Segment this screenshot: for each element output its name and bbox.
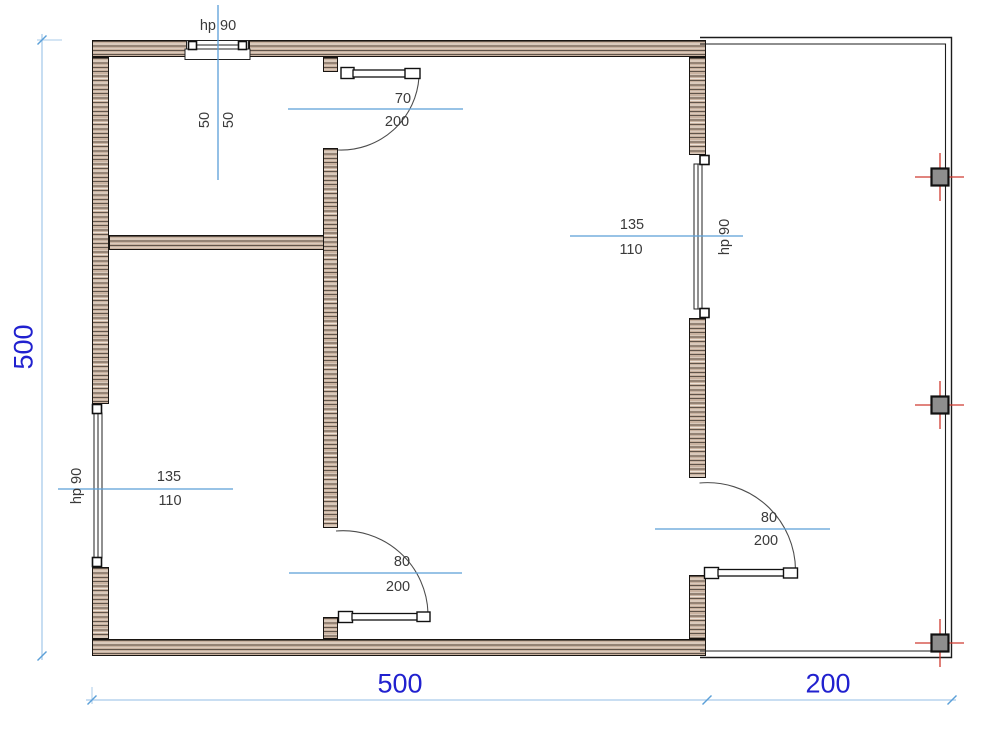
right-window-height-label: 110	[619, 243, 642, 258]
dimension-line-left	[37, 34, 62, 661]
floor-plan: 500 500 200 hp 90 50 50 70 200 135 110 h…	[0, 0, 1000, 750]
dim-main-width: 500	[377, 671, 422, 698]
porch-outline	[700, 38, 952, 658]
dim-total-height: 500	[11, 324, 38, 369]
top-window-parapet-label: hp 90	[200, 19, 236, 34]
top-door-height-label: 200	[385, 115, 409, 130]
column-icon	[932, 635, 949, 652]
dim-porch-width: 200	[805, 671, 850, 698]
right-window-width-label: 135	[620, 218, 644, 233]
column-icon	[932, 397, 949, 414]
right-window-parapet-label: hp 90	[718, 219, 733, 255]
column-icon	[932, 169, 949, 186]
door-middle	[336, 531, 430, 623]
porch-column-top	[915, 153, 964, 201]
window-left	[93, 405, 103, 567]
door-swing-arc	[700, 483, 796, 570]
left-window-parapet-label: hp 90	[70, 468, 85, 504]
right-door-height-label: 200	[754, 534, 778, 549]
top-window-width-label: 50	[198, 112, 213, 128]
door-swing-arc	[336, 531, 428, 613]
annotation-fraction-lines	[58, 5, 830, 573]
top-window-height-label: 50	[222, 112, 237, 128]
plan-linework	[0, 0, 1000, 750]
porch-column-middle	[915, 381, 964, 429]
mid-door-width-label: 80	[394, 555, 410, 570]
mid-door-height-label: 200	[386, 580, 410, 595]
porch-column-bottom	[915, 619, 964, 667]
left-window-height-label: 110	[158, 494, 181, 509]
right-door-width-label: 80	[761, 511, 777, 526]
left-window-width-label: 135	[157, 470, 181, 485]
top-door-width-label: 70	[395, 92, 411, 107]
door-right	[700, 483, 798, 579]
